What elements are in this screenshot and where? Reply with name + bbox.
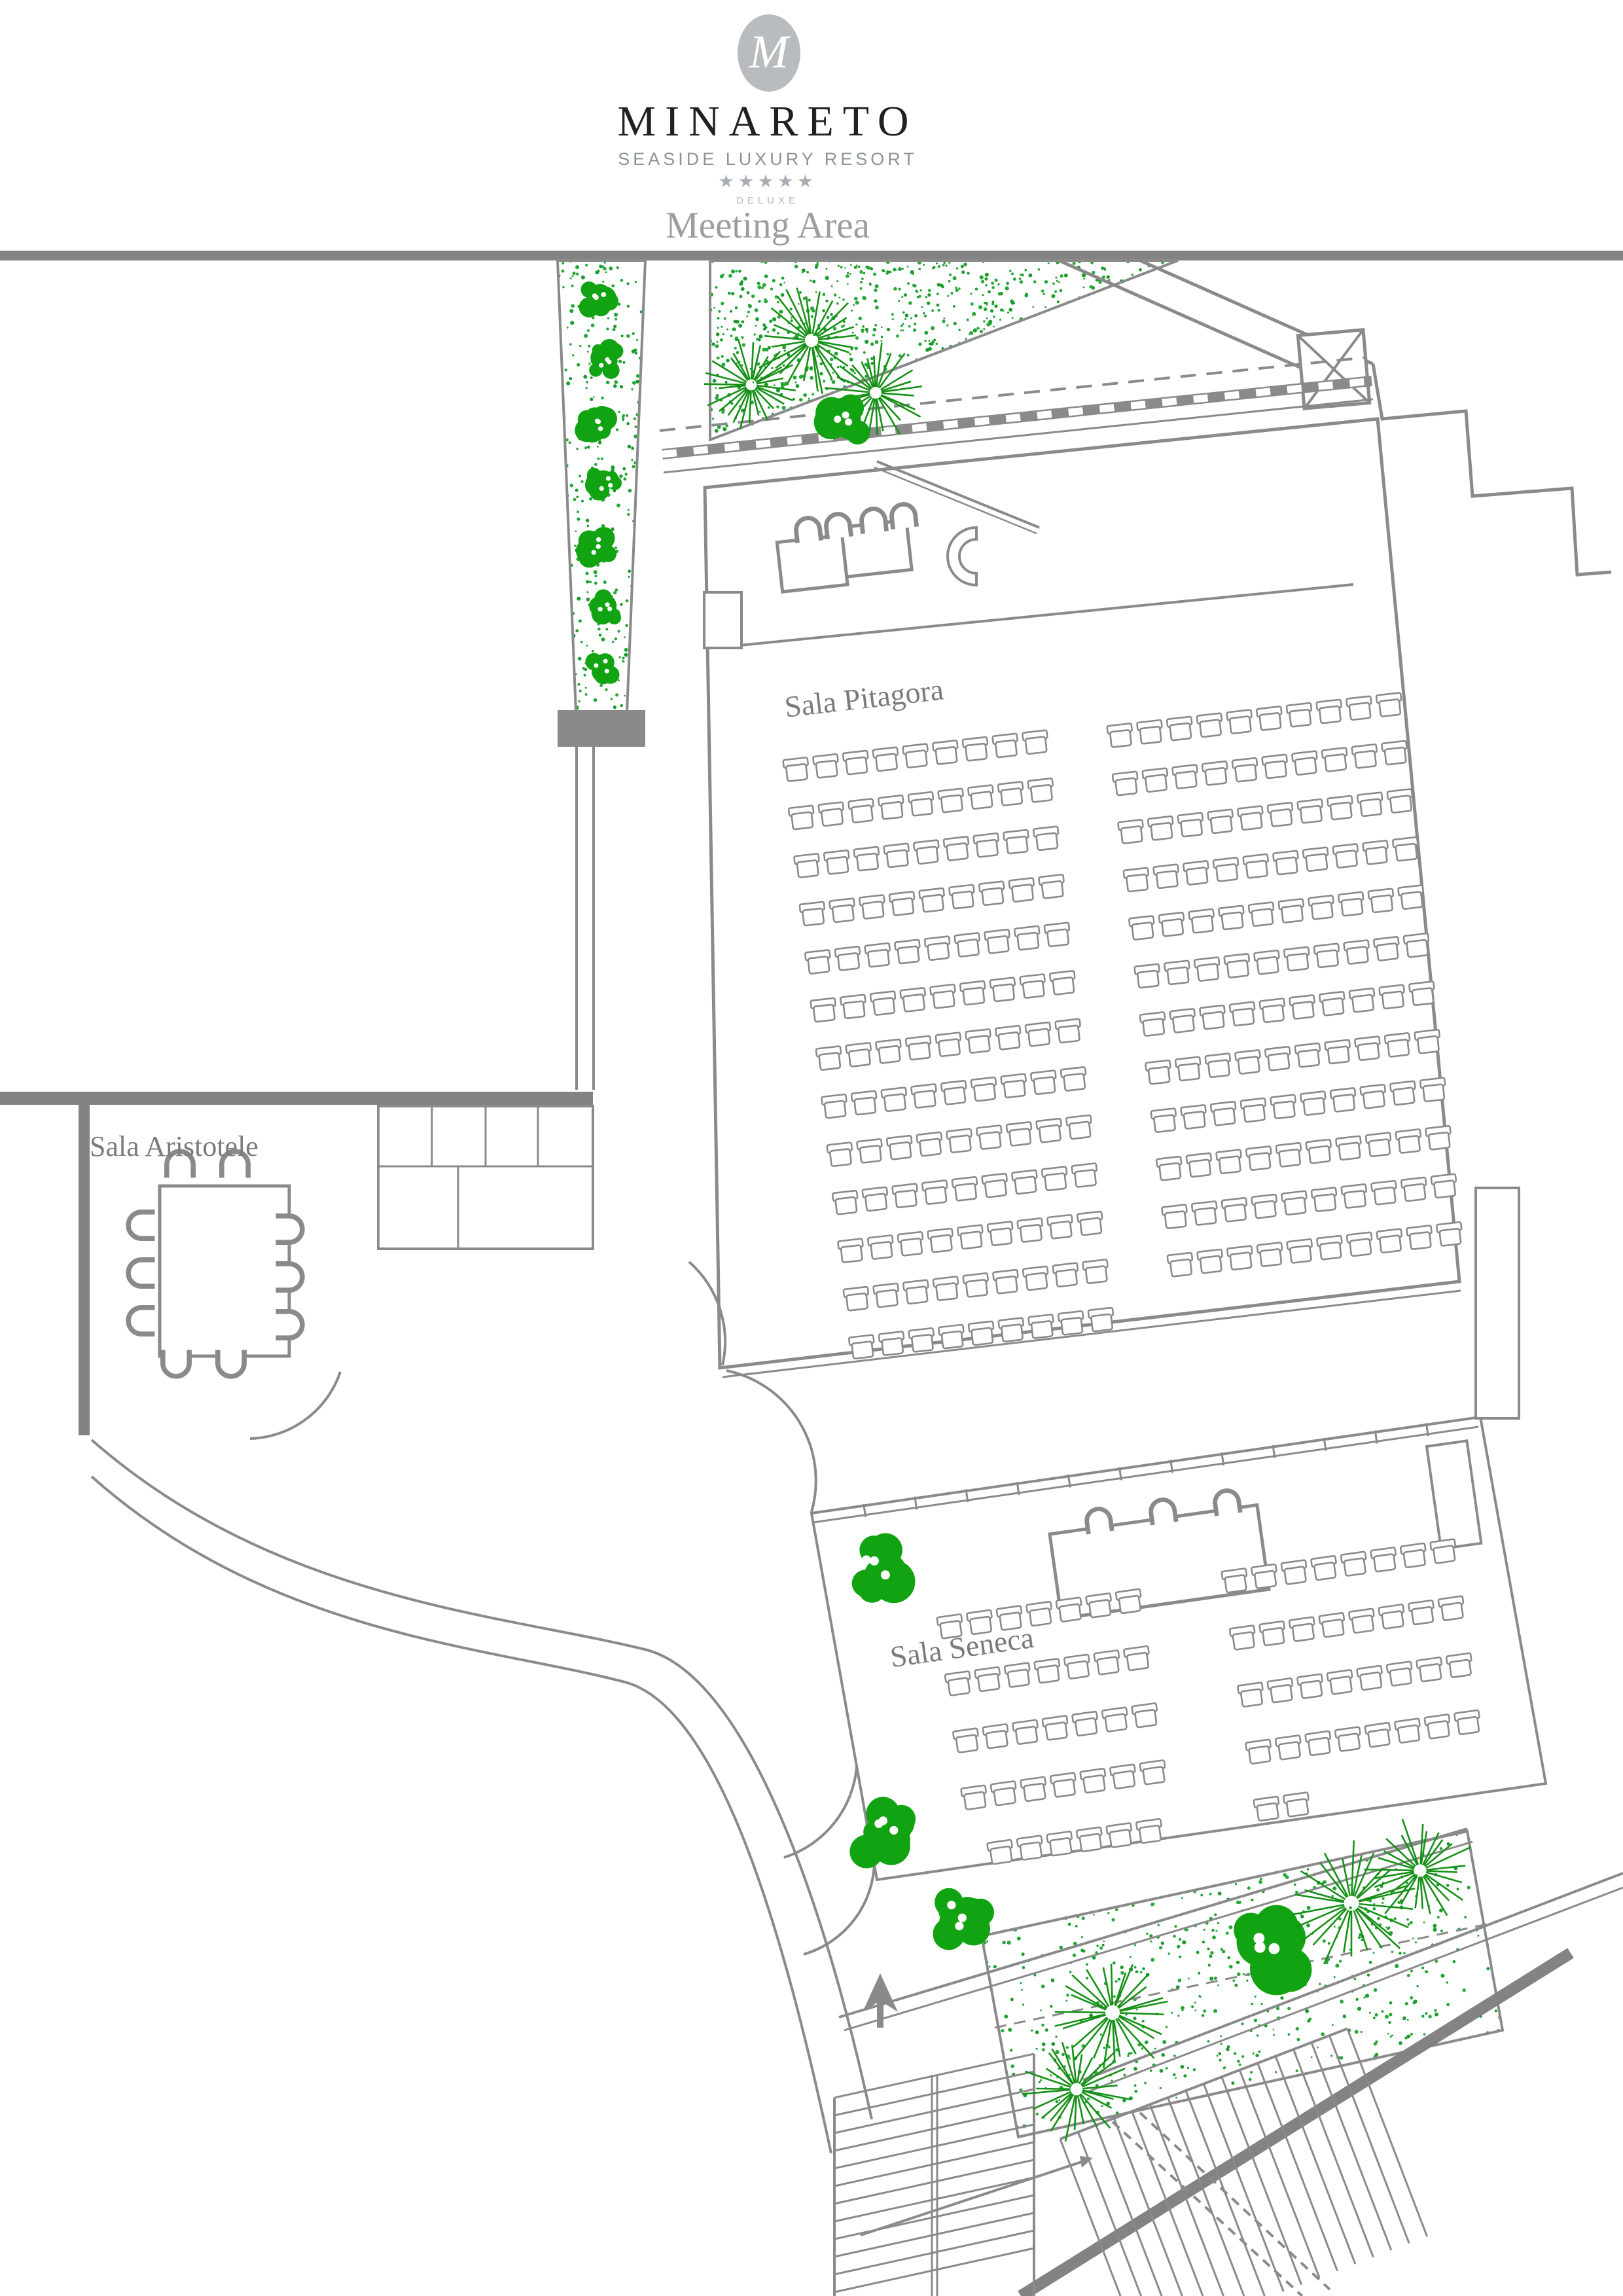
scatter-dot xyxy=(993,1965,997,1968)
scatter-dot xyxy=(1407,2019,1409,2021)
seat xyxy=(1036,1119,1063,1143)
scatter-dot xyxy=(1136,2009,1138,2011)
scatter-dot xyxy=(582,667,585,670)
scatter-dot xyxy=(567,327,569,329)
seat xyxy=(883,844,910,868)
scatter-dot xyxy=(626,414,628,417)
scatter-dot xyxy=(711,342,715,346)
left-stair-step xyxy=(834,2248,1034,2292)
bush-highlight xyxy=(598,607,603,611)
scatter-dot xyxy=(895,269,897,271)
scatter-dot xyxy=(1100,2034,1103,2036)
seat xyxy=(1243,854,1270,878)
scatter-dot xyxy=(865,363,868,366)
bush-highlight xyxy=(834,416,841,423)
seat xyxy=(941,1081,968,1105)
scatter-dot xyxy=(1255,2054,1259,2058)
scatter-dot xyxy=(741,336,743,339)
scatter-dot xyxy=(862,325,865,328)
bush xyxy=(575,406,617,442)
scatter-dot xyxy=(771,367,773,369)
scatter-dot xyxy=(1036,2048,1038,2050)
scatter-dot xyxy=(1050,2074,1052,2076)
scatter-dot xyxy=(576,448,578,450)
scatter-dot xyxy=(841,325,844,328)
scatter-dot xyxy=(1048,262,1050,264)
scatter-dot xyxy=(1051,2042,1055,2046)
seat xyxy=(865,943,891,967)
scatter-dot xyxy=(1209,1954,1212,1958)
bush-highlight xyxy=(881,1570,890,1579)
seat xyxy=(1034,1659,1061,1683)
scatter-dot xyxy=(928,289,931,293)
scatter-dot xyxy=(570,484,574,488)
seat xyxy=(1446,1653,1474,1678)
scatter-dot xyxy=(1040,2009,1042,2011)
scatter-dot xyxy=(779,310,781,313)
scatter-dot xyxy=(883,270,885,272)
scatter-dot xyxy=(624,636,626,638)
scatter-dot xyxy=(575,530,577,532)
scatter-dot xyxy=(1330,2054,1332,2056)
seat xyxy=(819,802,846,826)
scatter-dot xyxy=(871,362,874,365)
scatter-dot xyxy=(902,312,905,314)
scatter-dot xyxy=(1294,1884,1296,1886)
scatter-dot xyxy=(613,328,616,331)
seat xyxy=(1140,1012,1167,1036)
bush-highlight xyxy=(947,1901,955,1909)
scatter-dot xyxy=(1154,2048,1156,2050)
scatter-dot xyxy=(1140,1971,1143,1973)
scatter-dot xyxy=(1241,2022,1244,2025)
seat xyxy=(1077,1827,1104,1852)
seat xyxy=(840,995,867,1019)
left-stair-step xyxy=(834,2072,1034,2115)
scatter-dot xyxy=(815,291,817,293)
scatter-dot xyxy=(1162,2040,1166,2044)
scatter-dot xyxy=(586,580,589,583)
seat xyxy=(1292,751,1319,775)
seat xyxy=(1169,1009,1196,1033)
seat xyxy=(1281,1560,1309,1585)
scatter-dot xyxy=(810,376,813,380)
scatter-dot xyxy=(747,291,750,295)
scatter-dot xyxy=(636,374,639,378)
scatter-dot xyxy=(741,320,745,323)
seat xyxy=(1148,816,1175,840)
scatter-dot xyxy=(1196,1951,1200,1954)
scatter-dot xyxy=(758,338,761,342)
seat xyxy=(1393,837,1419,861)
scatter-dot xyxy=(1260,1878,1262,1880)
scatter-dot xyxy=(1446,1981,1449,1984)
seat xyxy=(1230,1002,1257,1026)
exit-arrow-icon xyxy=(863,1973,898,2028)
scatter-dot xyxy=(579,620,580,622)
scatter-dot xyxy=(1134,1966,1137,1969)
seat xyxy=(1110,1765,1137,1789)
scatter-dot xyxy=(1082,1916,1085,1920)
seat xyxy=(1420,1077,1447,1102)
scatter-dot xyxy=(1142,1967,1145,1970)
scatter-dot xyxy=(1285,1875,1289,1879)
scatter-dot xyxy=(1334,1976,1336,1978)
seat xyxy=(898,1232,925,1256)
scatter-dot xyxy=(783,364,785,367)
scatter-dot xyxy=(740,295,743,298)
scatter-dot xyxy=(1410,1921,1413,1924)
scatter-dot xyxy=(632,381,636,385)
seat xyxy=(1355,1036,1382,1060)
seat xyxy=(1279,899,1306,923)
scatter-dot xyxy=(936,343,938,346)
scatter-dot xyxy=(986,317,988,319)
scatter-dot xyxy=(866,331,868,333)
scatter-dot xyxy=(613,706,616,709)
scatter-dot xyxy=(1060,1946,1063,1949)
scatter-dot xyxy=(873,273,876,276)
seat xyxy=(1436,1222,1463,1246)
scatter-dot xyxy=(1332,2024,1334,2026)
scatter-dot xyxy=(1334,1926,1336,1928)
seat xyxy=(1136,1819,1164,1844)
scatter-dot xyxy=(1440,1847,1442,1850)
scatter-dot xyxy=(1010,1998,1014,2001)
seat xyxy=(1053,1263,1080,1287)
seat xyxy=(988,1221,1014,1246)
bush-blob xyxy=(866,1797,900,1831)
seat xyxy=(848,798,875,823)
scatter-dot xyxy=(1118,1978,1121,1981)
palm-frond xyxy=(707,387,746,406)
seat xyxy=(821,1094,848,1119)
scatter-dot xyxy=(1113,1962,1116,1965)
scatter-dot xyxy=(975,288,978,291)
scatter-dot xyxy=(712,418,714,420)
scatter-dot xyxy=(833,327,836,330)
scatter-dot xyxy=(898,288,901,291)
pitagora-speaker-chair xyxy=(795,517,821,543)
seat xyxy=(838,1238,865,1263)
seat xyxy=(1153,865,1180,889)
scatter-dot xyxy=(901,329,902,331)
seat xyxy=(1124,868,1150,892)
seat xyxy=(878,795,905,819)
scatter-dot xyxy=(898,267,902,271)
scatter-dot xyxy=(755,308,758,312)
scatter-dot xyxy=(1253,2053,1255,2054)
scatter-dot xyxy=(1051,294,1055,298)
seat xyxy=(1235,1050,1262,1074)
seat xyxy=(1385,1033,1412,1057)
palm-tree xyxy=(759,288,856,394)
seat xyxy=(1408,1600,1436,1625)
scatter-dot xyxy=(590,397,593,401)
scatter-dot xyxy=(1389,2001,1393,2005)
scatter-dot xyxy=(1251,2003,1253,2005)
seat xyxy=(1017,1835,1044,1860)
scatter-dot xyxy=(575,489,579,492)
scatter-dot xyxy=(584,334,588,338)
scatter-dot xyxy=(588,363,590,365)
scatter-dot xyxy=(1041,1984,1045,1988)
seat xyxy=(1027,778,1054,802)
scatter-dot xyxy=(834,293,837,296)
scatter-dot xyxy=(580,641,583,643)
seat xyxy=(832,1191,859,1215)
bush xyxy=(1234,1905,1311,1996)
scatter-dot xyxy=(1217,1922,1219,1924)
seat xyxy=(983,1724,1010,1749)
scatter-dot xyxy=(870,342,874,346)
scatter-dot xyxy=(820,372,823,375)
hedge-end-wall xyxy=(558,710,645,747)
scatter-dot xyxy=(863,351,866,354)
seat xyxy=(914,840,940,864)
scatter-dot xyxy=(628,489,632,493)
scatter-dot xyxy=(576,273,579,276)
scatter-dot xyxy=(1391,2035,1393,2037)
palm-tree xyxy=(1292,1840,1415,1964)
scatter-dot xyxy=(978,305,982,309)
scatter-dot xyxy=(620,279,624,282)
scatter-dot xyxy=(798,303,800,305)
seat xyxy=(908,1328,935,1352)
scatter-dot xyxy=(1175,2097,1177,2099)
scatter-dot xyxy=(1340,2056,1343,2060)
seat xyxy=(1366,1132,1393,1157)
seat xyxy=(1311,1556,1338,1581)
scatter-dot xyxy=(1434,2009,1436,2012)
scatter-dot xyxy=(597,457,599,460)
seat xyxy=(961,1785,988,1810)
scatter-dot xyxy=(577,495,579,498)
scatter-dot xyxy=(1405,2002,1408,2005)
scatter-dot xyxy=(784,350,786,351)
scatter-dot xyxy=(724,317,726,320)
scatter-dot xyxy=(592,650,594,653)
pitagora-speaker-chair xyxy=(891,503,917,529)
seat xyxy=(1066,1115,1093,1139)
scatter-dot xyxy=(948,280,951,283)
scatter-dot xyxy=(1066,2046,1069,2049)
scatter-dot xyxy=(612,641,615,643)
bush-highlight xyxy=(598,426,603,431)
scatter-dot xyxy=(720,338,723,342)
scatter-dot xyxy=(862,296,866,300)
seat xyxy=(1014,926,1041,950)
bush-highlight xyxy=(594,663,598,668)
scatter-dot xyxy=(1210,1951,1213,1954)
scatter-dot xyxy=(753,382,755,384)
scatter-dot xyxy=(1435,1960,1438,1963)
palm-frond xyxy=(719,386,746,388)
scatter-dot xyxy=(625,473,628,475)
scatter-dot xyxy=(635,352,637,355)
scatter-dot xyxy=(1208,1964,1211,1967)
seat xyxy=(1056,1598,1084,1623)
scatter-dot xyxy=(1237,1973,1241,1977)
seat xyxy=(1050,1772,1078,1797)
scatter-dot xyxy=(1317,2047,1319,2049)
scatter-dot xyxy=(1152,1903,1154,1905)
scatter-dot xyxy=(633,418,636,420)
seat xyxy=(1368,889,1395,913)
scatter-dot xyxy=(1134,2084,1137,2087)
scatter-dot xyxy=(942,319,945,323)
scatter-dot xyxy=(1356,1998,1359,2001)
scatter-dot xyxy=(730,334,733,337)
scatter-dot xyxy=(586,598,590,601)
scatter-dot xyxy=(983,320,986,323)
main-stair-step xyxy=(1275,2056,1355,2264)
scatter-dot xyxy=(1229,1926,1233,1929)
scatter-dot xyxy=(875,284,879,288)
seat xyxy=(1077,1211,1104,1236)
scatter-dot xyxy=(865,266,868,268)
scatter-dot xyxy=(1061,2053,1065,2056)
seat xyxy=(1205,1053,1232,1077)
seat xyxy=(1395,1719,1422,1744)
scatter-dot xyxy=(1065,2000,1067,2002)
seat xyxy=(1319,1613,1346,1638)
scatter-dot xyxy=(620,476,622,478)
bush-highlight xyxy=(596,544,601,548)
scatter-dot xyxy=(914,314,918,317)
seat xyxy=(1289,995,1316,1019)
scatter-dot xyxy=(1057,300,1060,303)
scatter-dot xyxy=(772,279,776,282)
scatter-dot xyxy=(855,336,859,340)
seat xyxy=(854,847,881,871)
scatter-dot xyxy=(717,341,719,343)
scatter-dot xyxy=(1083,287,1085,289)
scatter-dot xyxy=(1222,1950,1225,1953)
scatter-dot xyxy=(988,291,991,294)
seat xyxy=(1167,717,1194,741)
scatter-dot xyxy=(1160,2069,1164,2073)
seat xyxy=(1009,878,1036,902)
palm-frond xyxy=(1082,2085,1117,2089)
scatter-dot xyxy=(1127,2055,1129,2057)
scatter-dot xyxy=(1307,2019,1310,2022)
seat xyxy=(1395,1129,1422,1153)
scatter-dot xyxy=(1187,2067,1189,2069)
bush-blob xyxy=(592,344,604,356)
scatter-dot xyxy=(955,289,959,292)
scatter-dot xyxy=(1073,1954,1076,1957)
scatter-dot xyxy=(1227,1956,1230,1960)
scatter-dot xyxy=(870,357,874,361)
scatter-dot xyxy=(777,332,779,334)
scatter-dot xyxy=(620,704,623,707)
scatter-dot xyxy=(1056,280,1058,282)
scatter-dot xyxy=(572,354,574,356)
scatter-dot xyxy=(1440,1929,1443,1932)
scatter-dot xyxy=(1011,2064,1015,2068)
bush-highlight xyxy=(607,359,611,364)
scatter-dot xyxy=(627,282,630,285)
scatter-dot xyxy=(757,285,761,289)
scatter-dot xyxy=(1081,1936,1083,1938)
scatter-dot xyxy=(623,361,626,364)
seat xyxy=(1116,1589,1143,1614)
seat xyxy=(976,1125,1003,1149)
seat xyxy=(827,1142,853,1166)
seat xyxy=(1086,1593,1113,1618)
seat xyxy=(1364,1723,1392,1748)
scatter-dot xyxy=(969,331,973,335)
seat xyxy=(1168,1253,1194,1277)
scatter-dot xyxy=(628,569,631,573)
scatter-dot xyxy=(851,369,855,372)
scatter-dot xyxy=(1022,2003,1024,2005)
main-stair-step xyxy=(1240,2070,1319,2278)
scatter-dot xyxy=(802,268,806,272)
scatter-dot xyxy=(947,295,949,297)
scatter-dot xyxy=(735,306,738,309)
seat xyxy=(1188,909,1215,933)
scatter-dot xyxy=(1399,1952,1402,1955)
scatter-dot xyxy=(611,698,613,700)
seneca-speaker-chair xyxy=(1149,1498,1176,1525)
seat xyxy=(1082,1259,1109,1283)
scatter-dot xyxy=(1128,2053,1131,2056)
scatter-dot xyxy=(577,363,580,367)
scatter-dot xyxy=(742,343,746,347)
scatter-dot xyxy=(1120,1971,1124,1975)
seat xyxy=(1094,1650,1122,1675)
scatter-dot xyxy=(768,406,770,409)
scatter-dot xyxy=(1375,2013,1378,2017)
seat xyxy=(835,946,862,971)
scatter-dot xyxy=(985,273,989,277)
bush-highlight xyxy=(592,550,596,554)
scatter-dot xyxy=(764,327,766,329)
scatter-dot xyxy=(1311,2056,1313,2058)
seat xyxy=(938,789,965,813)
scatter-dot xyxy=(1045,2028,1048,2032)
scatter-dot xyxy=(599,634,602,637)
scatter-dot xyxy=(965,338,967,340)
seat xyxy=(1007,1122,1033,1146)
scatter-dot xyxy=(874,324,877,327)
scatter-dot xyxy=(1321,2032,1325,2036)
seat xyxy=(1347,1232,1374,1257)
bush-blob xyxy=(587,468,601,482)
bush-highlight xyxy=(596,537,601,542)
scatter-dot xyxy=(1029,274,1033,278)
seat xyxy=(805,950,832,974)
scatter-dot xyxy=(997,283,999,285)
scatter-dot xyxy=(1410,2033,1413,2036)
seat xyxy=(1137,720,1164,744)
scatter-dot xyxy=(1132,274,1133,276)
scatter-dot xyxy=(1377,1917,1380,1920)
aristotele-board-chair xyxy=(276,1216,302,1242)
seat xyxy=(963,737,990,761)
scatter-dot xyxy=(855,323,857,325)
seat xyxy=(824,850,851,874)
scatter-dot xyxy=(855,301,859,305)
scatter-dot xyxy=(961,270,965,274)
scatter-dot xyxy=(1404,2037,1407,2039)
main-stair-step xyxy=(1204,2084,1283,2291)
scatter-dot xyxy=(800,374,804,378)
scatter-dot xyxy=(865,328,868,331)
scatter-dot xyxy=(1307,1868,1309,1870)
